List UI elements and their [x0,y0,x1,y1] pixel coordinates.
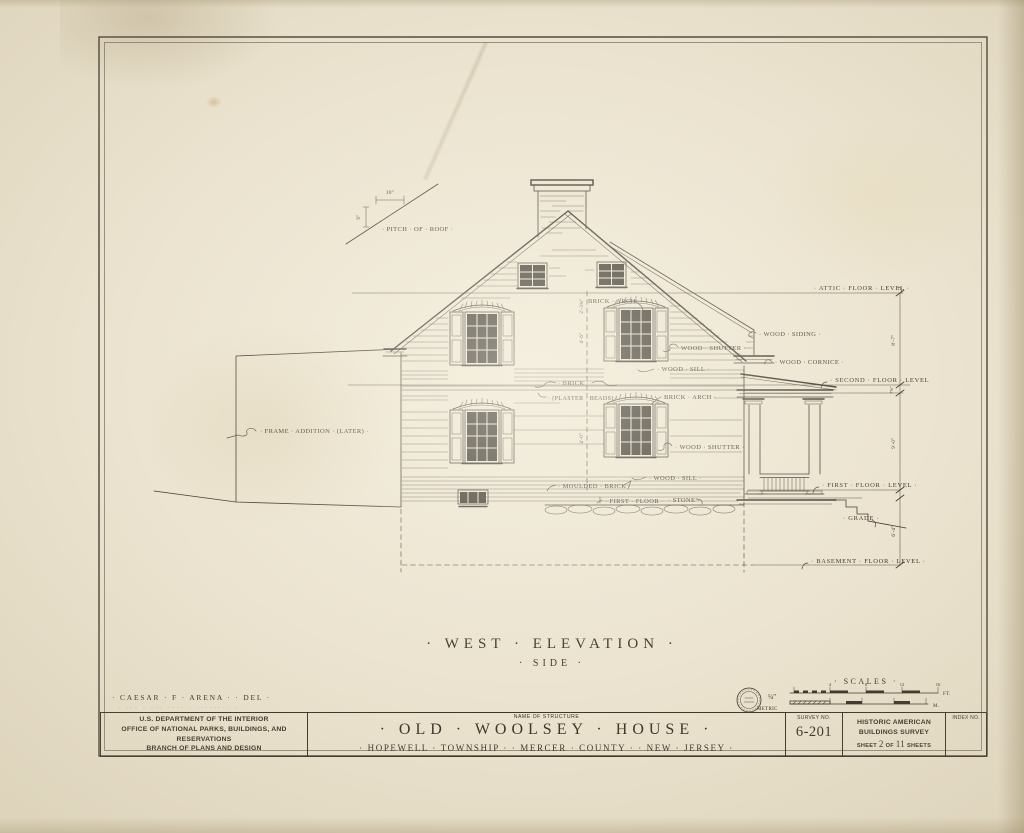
dimension-line-right: 8'-7" 7⅝" 9'-0" 6'-4" [889,290,904,568]
frame-addition-outline [236,349,401,502]
caption-subtitle: · SIDE · [519,658,585,669]
first-floor-level-label: · FIRST · FLOOR · LEVEL · [822,482,917,489]
second-floor-level-label: · SECOND · FLOOR · LEVEL [830,377,929,384]
agency-line: U.S. DEPARTMENT OF THE INTERIOR [101,715,307,725]
credit-line: · CAESAR · F · ARENA · · DEL · [112,693,271,702]
wood-shutter-upper-label: WOOD · SHUTTER · [681,345,746,352]
elevation-drawing: 8'-7" 7⅝" 9'-0" 6'-4" 2'-3¾" 4'-6" 4'-0"… [0,0,1024,833]
attic-floor-level-label: · ATTIC · FLOOR · LEVEL · [814,285,910,292]
brick-arch-lower-label: BRICK · ARCH · [664,394,716,401]
first-floor-window-left [450,398,514,464]
imperial-scale-label: ¼" [768,693,776,701]
index-no-label: INDEX NO. [952,715,979,721]
habs-block: HISTORIC AMERICAN BUILDINGS SURVEY SHEET… [842,713,945,756]
agency-block: U.S. DEPARTMENT OF THE INTERIOR OFFICE O… [101,713,307,756]
roof [383,211,746,362]
survey-number-block: SURVEY NO. 6-201 [785,713,842,756]
annotation-labels: · FRAME · ADDITION · (LATER) · BRICK · A… [227,298,844,505]
basement-floor-level-label: · BASEMENT · FLOOR · LEVEL · [811,558,926,565]
wood-sill-lower-label: · WOOD · SILL · [649,475,702,482]
habs-line: HISTORIC AMERICAN [843,718,945,728]
survey-no-label: SURVEY NO. [786,715,842,721]
imperial-unit-label: FT. [943,692,951,697]
agency-line: OFFICE OF NATIONAL PARKS, BUILDINGS, AND… [101,725,307,745]
caption-title: · WEST · ELEVATION · [426,636,678,652]
scale-tick-12: 12 [900,682,905,687]
pitch-of-roof-diagram: 10" 9" · PITCH · OF · ROOF · [346,184,453,244]
attic-window-left [517,263,548,289]
wood-siding-label: · WOOD · SIDING · [759,331,821,338]
stone-label: · STONE · [668,497,700,504]
pitch-of-roof-label: · PITCH · OF · ROOF · [382,226,453,233]
structure-name-block: NAME OF STRUCTURE · OLD · WOOLSEY · HOUS… [307,713,785,756]
moulded-brick-label: · MOULDED · BRICK · [558,483,631,490]
sheet-total: 11 [896,739,905,749]
dim-window-upper: 2'-3¾" [580,298,585,313]
stone-foundation [545,505,744,515]
second-floor-window-right [604,296,668,362]
pitch-run-dim: 10" [386,191,394,196]
scanned-blueprint-sheet: { "colors": { "paper": "#ebe3cf", "ink":… [0,0,1024,833]
attic-window-right [596,262,627,288]
scale-tick-16: 16 [936,682,941,687]
dim-second-offset: 7⅝" [889,386,894,394]
sheet-count-line: SHEET 2 OF 11 SHEETS [843,738,945,752]
title-block: U.S. DEPARTMENT OF THE INTERIOR OFFICE O… [100,712,987,757]
scale-bars: ¼" METRIC · SCALES · 4 8 12 16 FT. M. [737,677,951,712]
drawing-caption: · WEST · ELEVATION · · SIDE · [426,636,678,669]
brick-arch-upper-label: BRICK · ARCH [588,298,636,305]
porch-steps [836,500,906,528]
wood-sill-upper-label: · WOOD · SILL · [657,366,710,373]
credit-erased-line: · ··· · ··· ···· · ········ · [118,704,240,712]
dim-second-first: 9'-0" [892,437,897,448]
sheet-word: SHEET [857,743,877,749]
basement-window [458,490,488,507]
habs-line: BUILDINGS SURVEY [843,728,945,738]
second-floor-window-left [450,300,514,366]
dim-first-basement: 6'-4" [892,525,897,536]
grade-label: · GRADE · [843,515,879,522]
first-floor-label: · FIRST · FLOOR · [605,498,664,505]
agency-line: BRANCH OF PLANS AND DESIGN [101,744,307,754]
index-number-block: INDEX NO. [945,713,986,756]
dim-window-mid: 4'-6" [580,332,585,343]
sheet-number: 2 [879,739,884,749]
level-labels: · ATTIC · FLOOR · LEVEL · · SECOND · FLO… [802,285,929,569]
pitch-rise-dim: 9" [357,214,362,219]
survey-no-value: 6-201 [786,724,842,741]
plaster-beads-label: · (PLASTER · BEADS) · [548,395,618,402]
brick-label: · BRICK · [558,380,589,387]
chimney [531,180,593,237]
name-of-structure-label: NAME OF STRUCTURE [308,714,785,720]
dim-attic-second: 8'-7" [892,334,897,345]
center-dimensions: 2'-3¾" 4'-6" 4'-0" [580,298,585,443]
scale-tick-4: 4 [829,682,832,687]
ground-line [154,491,401,507]
structure-name: · OLD · WOOLSEY · HOUSE · [308,721,785,739]
structure-location: · HOPEWELL · TOWNSHIP · · MERCER · COUNT… [308,743,785,753]
wood-shutter-lower-label: · WOOD · SHUTTER · [675,444,745,451]
of-word: OF [886,743,894,749]
wood-cornice-label: · WOOD · CORNICE · [775,359,844,366]
metric-unit-label: M. [933,704,939,709]
delineator-credit: · CAESAR · F · ARENA · · DEL · · ··· · ·… [112,693,271,712]
frame-addition-label: · FRAME · ADDITION · (LATER) · [260,428,369,435]
sheets-word: SHEETS [907,743,931,749]
dim-window-lower: 4'-0" [580,432,585,443]
